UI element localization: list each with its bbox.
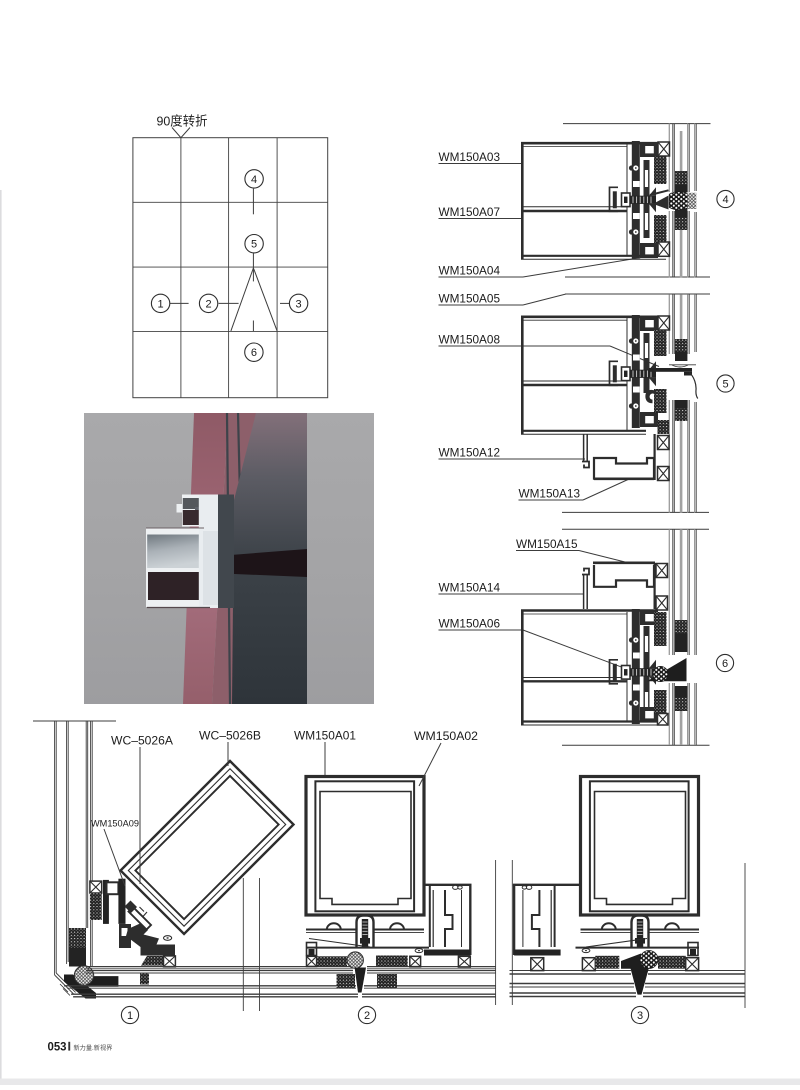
svg-text:WM150A02: WM150A02	[414, 729, 478, 743]
svg-text:053: 053	[48, 1042, 67, 1054]
svg-text:WM150A07: WM150A07	[439, 206, 501, 219]
svg-text:4: 4	[722, 194, 728, 206]
svg-text:90度转折: 90度转折	[157, 114, 208, 129]
svg-text:WM150A08: WM150A08	[439, 334, 501, 347]
svg-text:WC–5026A: WC–5026A	[111, 734, 173, 748]
svg-text:WM150A01: WM150A01	[294, 729, 356, 743]
svg-text:WM150A06: WM150A06	[439, 618, 501, 631]
svg-text:2: 2	[206, 298, 212, 310]
svg-text:WM150A13: WM150A13	[519, 488, 581, 501]
svg-text:6: 6	[722, 658, 728, 670]
svg-text:WM150A15: WM150A15	[516, 538, 578, 551]
svg-text:5: 5	[722, 378, 728, 390]
svg-text:WM150A09: WM150A09	[91, 819, 139, 830]
svg-text:6: 6	[251, 347, 257, 359]
svg-text:WM150A03: WM150A03	[439, 151, 501, 164]
svg-text:2: 2	[364, 1010, 370, 1022]
svg-text:新力量.新视界: 新力量.新视界	[74, 1044, 113, 1052]
svg-text:4: 4	[251, 174, 257, 186]
svg-text:5: 5	[251, 239, 257, 251]
svg-text:3: 3	[637, 1010, 643, 1022]
svg-text:WM150A05: WM150A05	[439, 293, 501, 306]
svg-text:1: 1	[158, 298, 164, 310]
svg-text:WM150A14: WM150A14	[439, 582, 501, 595]
svg-text:1: 1	[127, 1010, 133, 1022]
svg-text:WM150A12: WM150A12	[439, 447, 501, 460]
svg-text:WC–5026B: WC–5026B	[199, 729, 261, 743]
svg-text:WM150A04: WM150A04	[439, 265, 501, 278]
svg-text:3: 3	[296, 298, 302, 310]
